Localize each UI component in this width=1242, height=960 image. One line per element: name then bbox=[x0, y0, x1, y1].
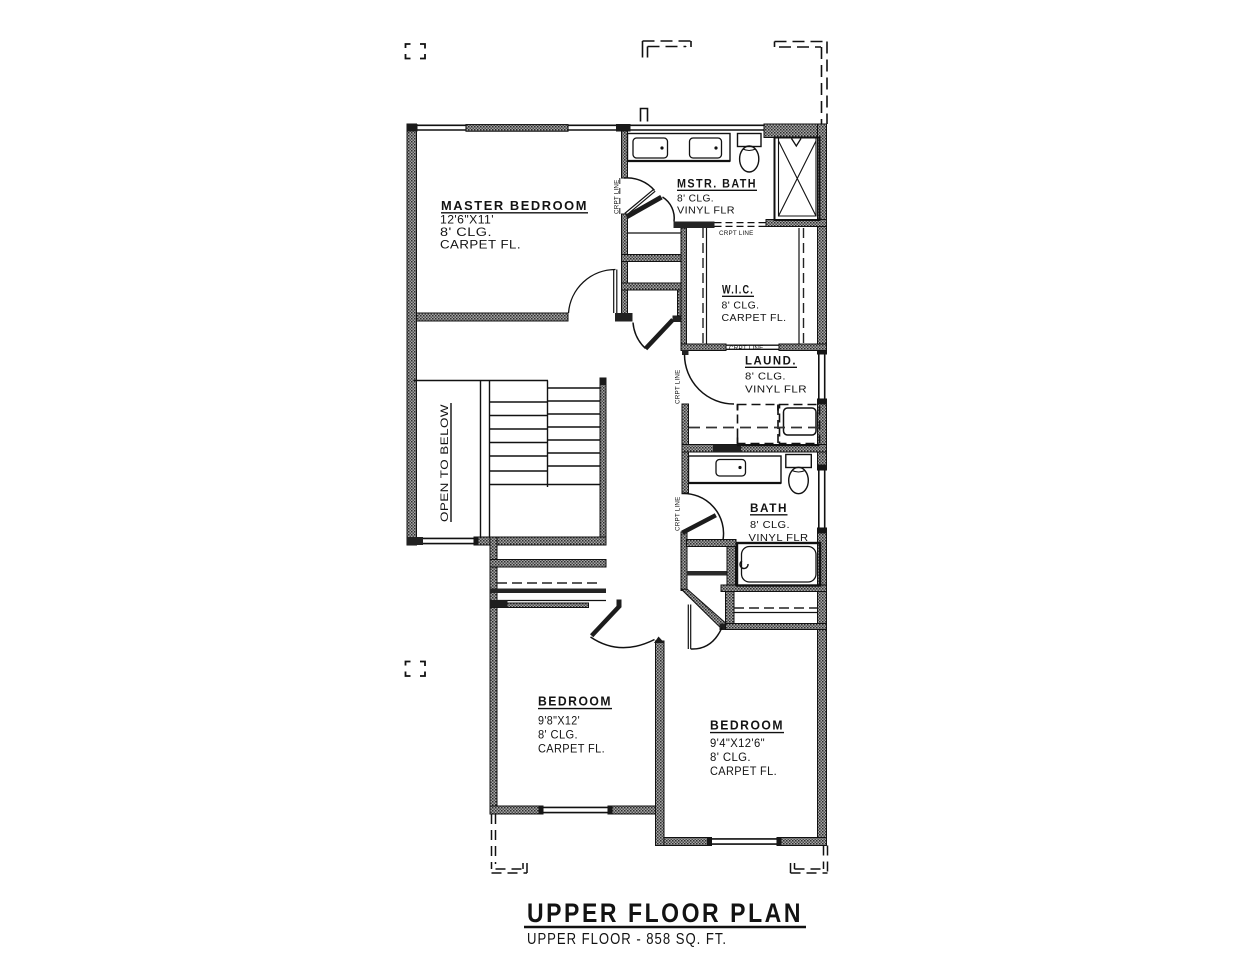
svg-text:CARPET FL.: CARPET FL. bbox=[710, 766, 777, 778]
svg-text:8' CLG.: 8' CLG. bbox=[750, 519, 790, 531]
svg-text:BEDROOM: BEDROOM bbox=[710, 718, 784, 733]
svg-text:VINYL FLR: VINYL FLR bbox=[677, 205, 735, 217]
svg-text:CARPET FL.: CARPET FL. bbox=[440, 240, 521, 252]
svg-text:W.I.C.: W.I.C. bbox=[722, 283, 754, 297]
svg-text:VINYL FLR: VINYL FLR bbox=[745, 384, 807, 396]
svg-text:8' CLG.: 8' CLG. bbox=[677, 193, 714, 205]
svg-text:OPEN TO BELOW: OPEN TO BELOW bbox=[439, 404, 451, 522]
svg-text:MASTER BEDROOM: MASTER BEDROOM bbox=[441, 198, 588, 213]
svg-text:UPPER FLOOR - 858 SQ. FT.: UPPER FLOOR - 858 SQ. FT. bbox=[527, 931, 727, 948]
svg-text:9'8"X12': 9'8"X12' bbox=[538, 716, 580, 728]
svg-text:MSTR. BATH: MSTR. BATH bbox=[677, 177, 757, 191]
svg-text:CRPT LINE: CRPT LINE bbox=[675, 496, 682, 531]
svg-text:8' CLG.: 8' CLG. bbox=[745, 371, 786, 383]
svg-text:UPPER FLOOR PLAN: UPPER FLOOR PLAN bbox=[527, 898, 803, 928]
svg-text:8' CLG.: 8' CLG. bbox=[722, 300, 760, 312]
svg-text:CRPT LINE: CRPT LINE bbox=[675, 369, 682, 404]
svg-text:CRPT LINE: CRPT LINE bbox=[729, 345, 764, 352]
svg-text:CRPT LINE: CRPT LINE bbox=[719, 230, 754, 237]
svg-text:VINYL FLR: VINYL FLR bbox=[749, 532, 809, 544]
svg-text:CRPT LINE: CRPT LINE bbox=[614, 179, 621, 214]
svg-text:8' CLG.: 8' CLG. bbox=[538, 730, 578, 742]
svg-text:8' CLG.: 8' CLG. bbox=[440, 227, 492, 239]
svg-text:CARPET FL.: CARPET FL. bbox=[538, 744, 605, 756]
svg-text:LAUND.: LAUND. bbox=[745, 354, 797, 368]
svg-text:BEDROOM: BEDROOM bbox=[538, 694, 612, 709]
svg-text:12'6"X11': 12'6"X11' bbox=[440, 215, 494, 227]
svg-text:9'4"X12'6": 9'4"X12'6" bbox=[710, 738, 765, 750]
svg-text:8' CLG.: 8' CLG. bbox=[710, 752, 751, 764]
svg-text:BATH: BATH bbox=[750, 501, 788, 515]
svg-text:CARPET FL.: CARPET FL. bbox=[722, 312, 787, 324]
